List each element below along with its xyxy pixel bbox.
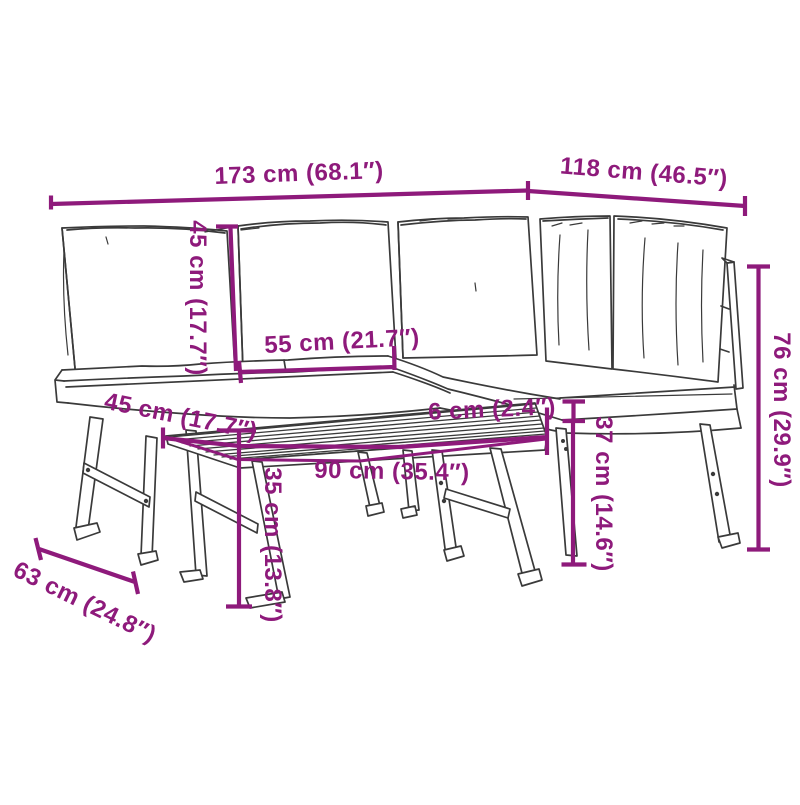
svg-text:6 cm (2.4″): 6 cm (2.4″)	[428, 393, 557, 426]
svg-text:76 cm (29.9″): 76 cm (29.9″)	[768, 332, 795, 487]
svg-text:45 cm (17.7″): 45 cm (17.7″)	[184, 220, 211, 375]
svg-text:35 cm (13.8″): 35 cm (13.8″)	[259, 467, 286, 622]
svg-text:37 cm (14.6″): 37 cm (14.6″)	[590, 416, 617, 571]
svg-text:90 cm (35.4″): 90 cm (35.4″)	[314, 457, 470, 487]
